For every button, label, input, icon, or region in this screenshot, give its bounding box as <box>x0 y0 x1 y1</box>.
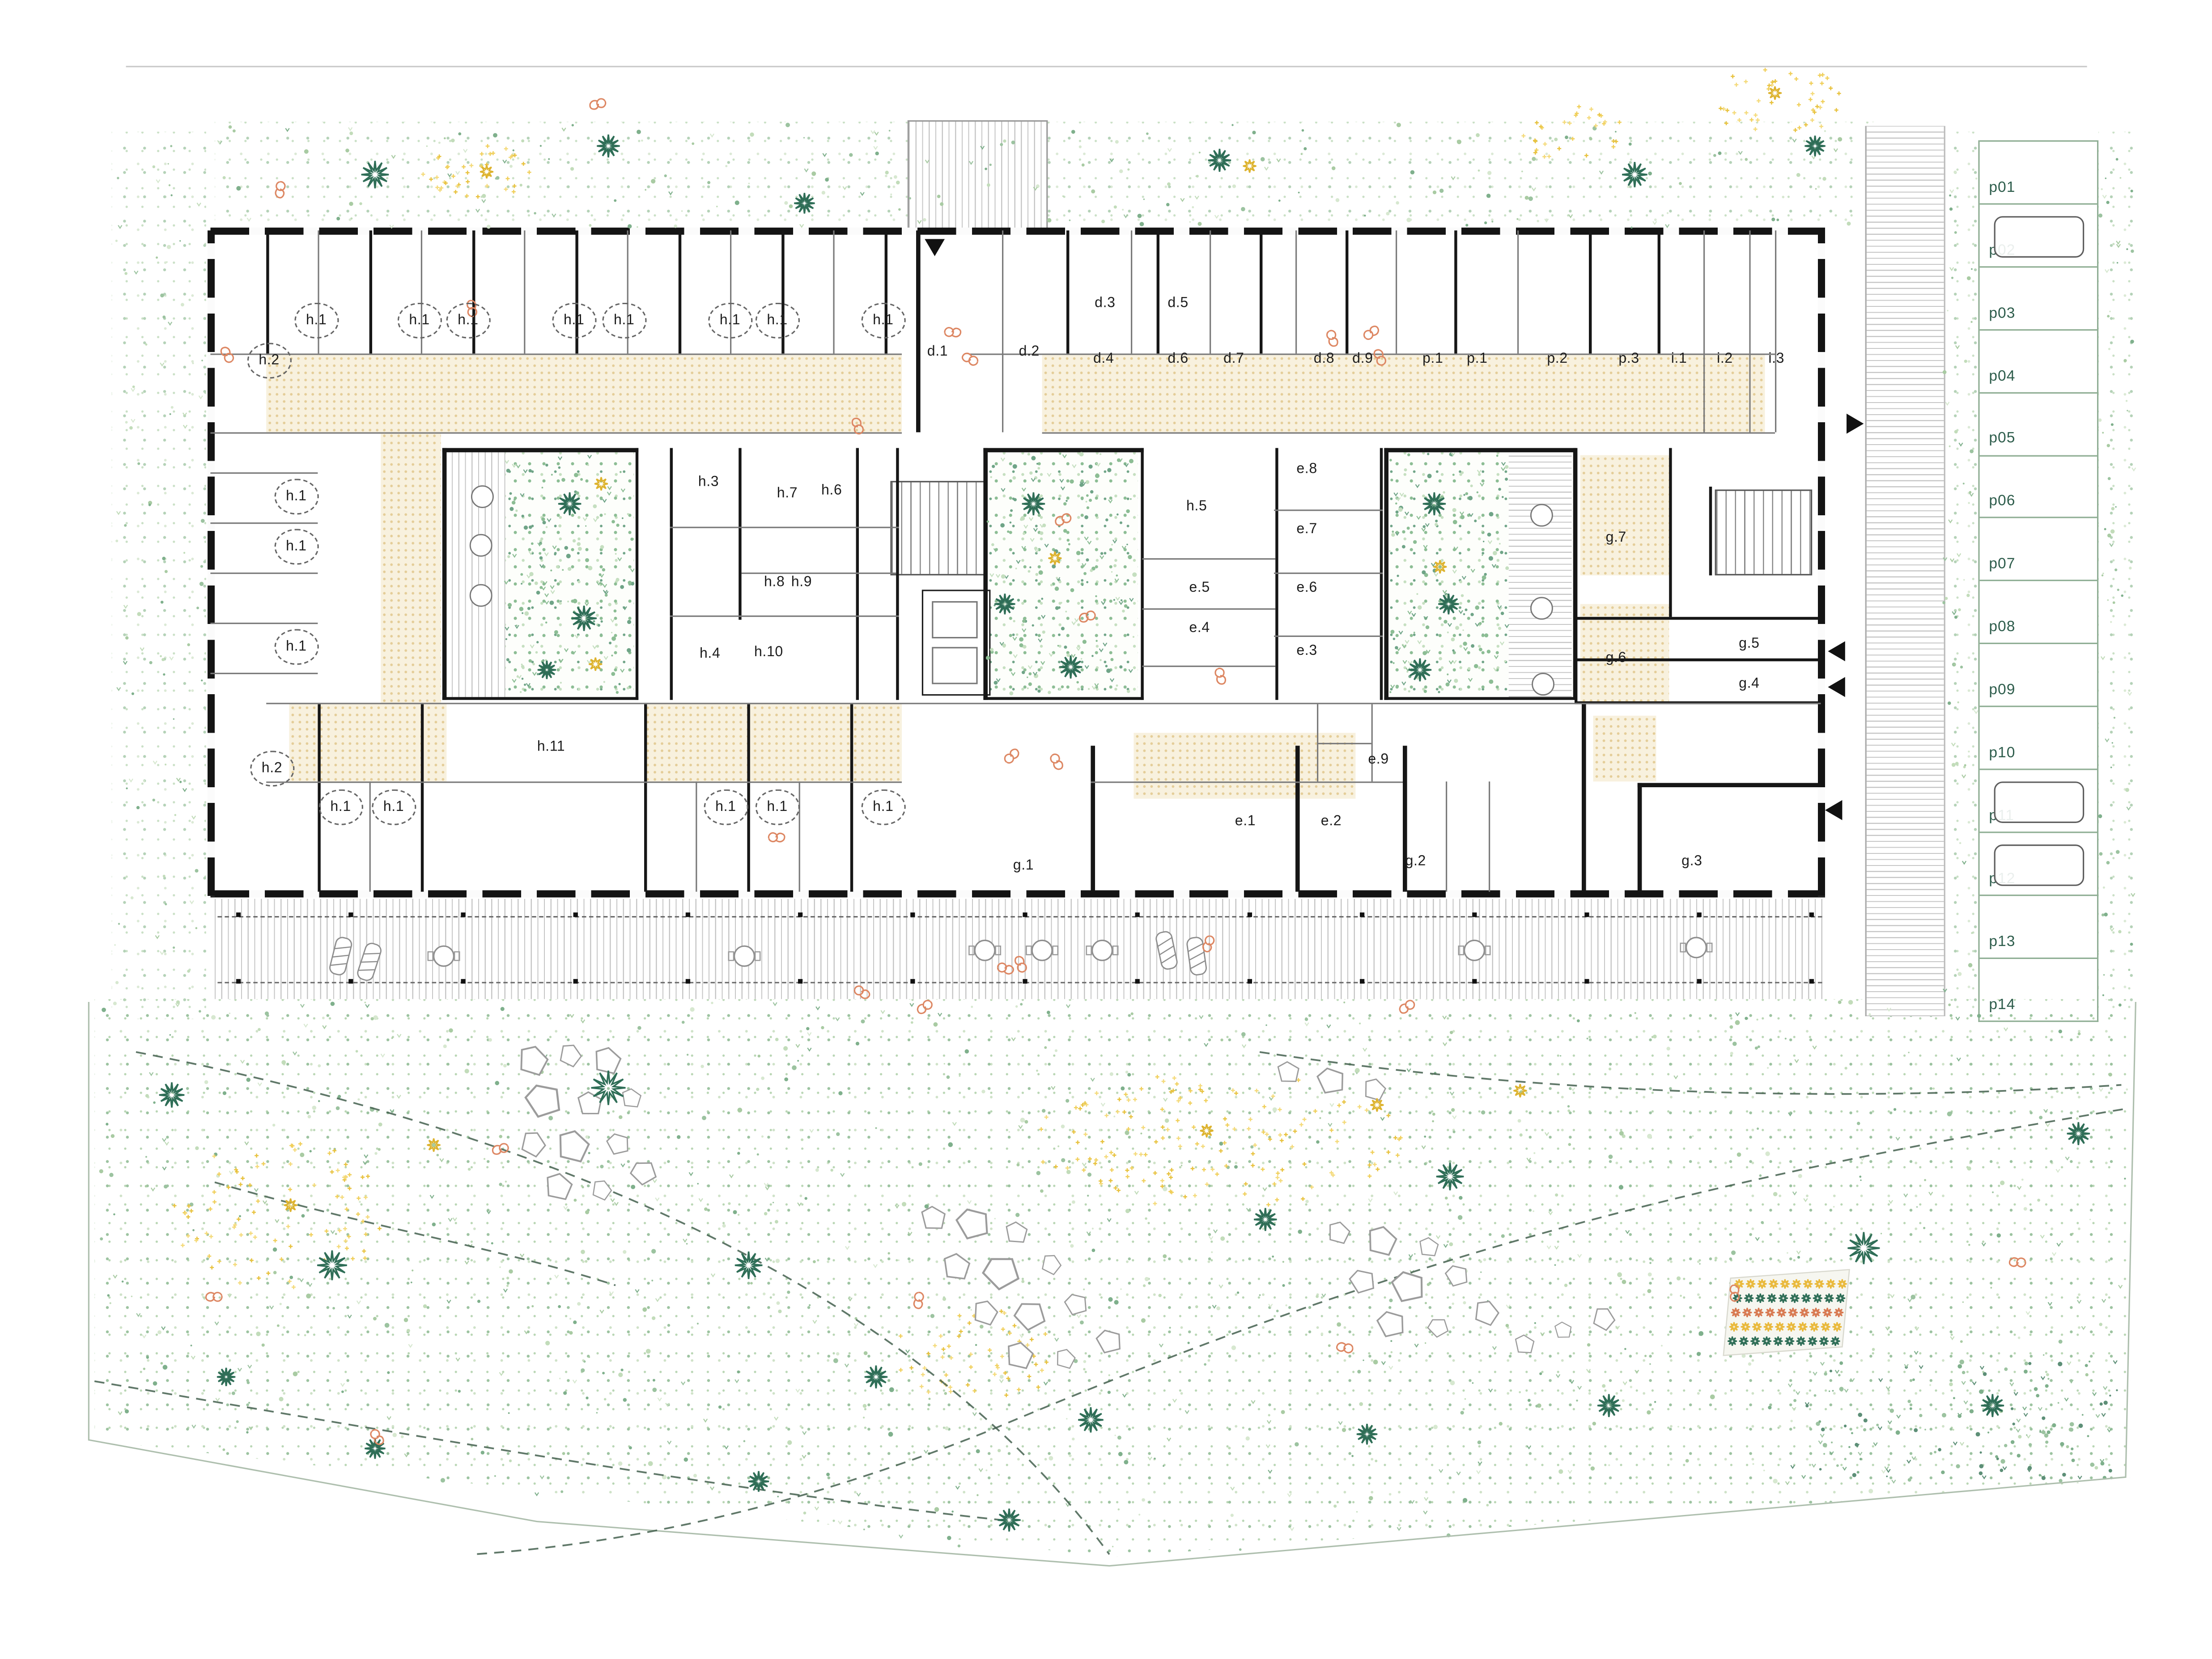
grass-dot <box>1042 631 1045 634</box>
grass-dot <box>889 1387 894 1392</box>
grass-tick <box>404 1454 408 1456</box>
flower-dot <box>327 1151 331 1155</box>
flower-dot <box>1124 1092 1128 1096</box>
grass-tick <box>1492 564 1496 567</box>
grass-dot <box>1537 220 1539 222</box>
grass-dot <box>1390 630 1394 634</box>
grass-dot <box>1007 530 1009 533</box>
grass-dot <box>971 1309 972 1311</box>
grass-tick <box>725 1446 728 1448</box>
grass-dot <box>1967 276 1971 280</box>
grass-dot <box>1055 586 1059 591</box>
grass-tick <box>453 1218 457 1220</box>
grass-dot <box>113 1001 117 1005</box>
grass-dot <box>115 539 118 542</box>
grass-tick <box>387 1417 391 1419</box>
grass-dot <box>509 165 513 168</box>
grass-dot <box>1647 1410 1651 1414</box>
grass-dot <box>1088 688 1090 690</box>
grass-dot <box>1413 540 1417 544</box>
grass-tick <box>505 460 509 463</box>
grass-dot <box>1034 547 1038 550</box>
stone-icon <box>1005 1340 1035 1369</box>
grass-dot <box>503 1064 507 1068</box>
flower-dot <box>1054 1165 1058 1169</box>
grass-tick <box>192 1425 195 1428</box>
flower-dot <box>1749 118 1753 122</box>
grass-dot <box>1122 610 1125 613</box>
room-label-d.7: d.7 <box>1223 352 1244 367</box>
grass-dot <box>585 558 589 562</box>
grass-tick <box>408 1344 412 1347</box>
grass-dot <box>2108 477 2111 480</box>
room-label-h.11: h.11 <box>537 739 565 755</box>
flower-dot <box>959 1329 963 1333</box>
grass-dot <box>813 1260 816 1263</box>
flower-dot <box>351 1256 355 1260</box>
grass-dot <box>1576 1400 1578 1402</box>
grass-dot <box>994 1218 996 1219</box>
grass-dot <box>896 181 900 185</box>
grass-dot <box>1591 1466 1595 1470</box>
grass-dot <box>1131 1012 1134 1015</box>
grass-tick <box>1024 525 1027 528</box>
grass-dot <box>992 465 995 468</box>
grass-tick <box>487 1210 490 1213</box>
grass-dot <box>1414 632 1415 633</box>
grass-tick <box>620 669 624 672</box>
grass-dot <box>1278 199 1281 202</box>
grass-dot <box>568 567 572 571</box>
grass-tick <box>170 657 173 659</box>
grass-dot <box>1942 1413 1946 1417</box>
plant-icon <box>1357 1424 1377 1444</box>
grass-dot <box>464 1069 469 1073</box>
grass-dot <box>702 1116 706 1120</box>
grass-tick <box>1532 188 1536 191</box>
grass-dot <box>162 315 166 318</box>
grass-dot <box>1128 555 1132 559</box>
grass-dot <box>1282 1284 1285 1287</box>
grass-dot <box>2108 1073 2112 1077</box>
grass-dot <box>1071 130 1075 134</box>
grass-dot <box>1486 194 1490 198</box>
grass-dot <box>1285 1304 1287 1306</box>
grass-dot <box>830 1169 833 1171</box>
grass-dot <box>1029 566 1031 568</box>
flower-dot <box>1829 86 1833 90</box>
grass-dot <box>1320 1332 1323 1335</box>
grass-dot <box>1475 606 1479 610</box>
grass-dot <box>1398 507 1403 512</box>
grass-dot <box>125 1409 129 1413</box>
flower-dot <box>1763 68 1767 72</box>
flower-dot <box>255 1154 259 1158</box>
grass-tick <box>1813 1046 1816 1048</box>
grass-dot <box>619 1115 623 1119</box>
grass-dot <box>179 781 182 783</box>
grass-dot <box>1484 573 1486 576</box>
grass-dot <box>1031 456 1036 460</box>
grass-tick <box>2114 1361 2117 1363</box>
grass-dot <box>1477 491 1478 493</box>
post-icon <box>348 979 353 984</box>
grass-dot <box>1195 1305 1198 1308</box>
grass-dot <box>1761 1221 1764 1224</box>
grass-dot <box>1453 520 1457 524</box>
flower-dot <box>939 1334 943 1338</box>
grass-dot <box>1095 474 1100 478</box>
grass-tick <box>1665 225 1669 227</box>
grass-dot <box>1609 1068 1611 1070</box>
grass-dot <box>1452 1303 1454 1305</box>
grass-dot <box>356 1050 358 1052</box>
grass-dot <box>1138 1514 1140 1515</box>
grass-dot <box>1120 1288 1121 1290</box>
grass-tick <box>547 518 551 521</box>
grass-tick <box>153 761 157 764</box>
plant-icon <box>1078 1407 1103 1432</box>
grass-dot <box>2012 1422 2015 1425</box>
grass-dot <box>1272 1256 1274 1258</box>
grass-dot <box>1000 1375 1004 1379</box>
grass-tick <box>1268 1470 1272 1472</box>
grass-tick <box>1427 650 1430 653</box>
table-icon <box>471 486 493 507</box>
grass-dot <box>1015 1005 1018 1007</box>
flower-dot <box>233 1263 237 1267</box>
grass-dot <box>1914 1428 1918 1432</box>
grass-dot <box>887 1252 890 1254</box>
grass-dot <box>1061 1158 1065 1162</box>
grass-dot <box>1589 137 1592 140</box>
grass-dot <box>1163 1254 1167 1258</box>
grass-tick <box>1886 1327 1889 1329</box>
grass-tick <box>1451 177 1455 179</box>
grass-dot <box>341 1391 344 1393</box>
grass-dot <box>641 140 643 142</box>
grass-dot <box>1468 496 1473 501</box>
grass-tick <box>1819 1441 1822 1443</box>
room-label-p.2: p.2 <box>1547 352 1567 367</box>
room-label-h.1: h.1 <box>294 303 338 339</box>
grass-dot <box>2109 1395 2111 1396</box>
grass-tick <box>1405 512 1409 514</box>
grass-dot <box>875 1127 877 1129</box>
flower-dot <box>1040 1368 1044 1372</box>
grass-tick <box>1119 601 1123 604</box>
grass-tick <box>1103 643 1107 645</box>
grass-tick <box>1129 669 1133 672</box>
grass-tick <box>1434 573 1438 576</box>
grass-tick <box>845 1364 849 1366</box>
chair-icon <box>755 952 760 960</box>
grass-dot <box>345 149 349 153</box>
grass-tick <box>134 271 138 274</box>
grass-tick <box>1030 538 1034 541</box>
grass-dot <box>1010 522 1012 524</box>
grass-dot <box>1461 1411 1464 1414</box>
grass-dot <box>1567 1105 1570 1107</box>
grass-dot <box>933 1022 938 1027</box>
grass-tick <box>1399 631 1402 634</box>
flower-dot <box>212 1190 216 1194</box>
grass-dot <box>373 1317 377 1320</box>
flower-dot <box>462 165 466 169</box>
grass-dot <box>1163 1465 1164 1467</box>
flower-dot <box>1577 105 1581 109</box>
grass-dot <box>1108 1129 1110 1132</box>
stone-icon <box>1006 1222 1027 1242</box>
flower-dot <box>1809 98 1813 102</box>
grass-tick <box>2065 1157 2069 1159</box>
grass-dot <box>1635 1476 1638 1478</box>
grass-dot <box>223 176 226 179</box>
flower-dot <box>1358 1105 1362 1109</box>
chair-icon <box>1113 946 1118 955</box>
grass-dot <box>1952 763 1956 767</box>
plant-icon <box>538 661 556 679</box>
grass-dot <box>1793 1399 1796 1402</box>
grass-dot <box>1124 604 1128 608</box>
grass-dot <box>1815 188 1817 190</box>
grass-dot <box>491 1242 493 1244</box>
grass-dot <box>722 1224 726 1228</box>
grass-dot <box>1035 573 1038 576</box>
flower-dot <box>1261 1130 1265 1134</box>
grass-dot <box>2109 1469 2112 1472</box>
grass-dot <box>775 1220 778 1224</box>
stone-icon <box>621 1088 641 1107</box>
grass-tick <box>1736 1013 1739 1015</box>
flower-dot <box>1535 121 1539 125</box>
flower-dot <box>1804 123 1808 127</box>
grass-dot <box>1857 1122 1860 1125</box>
grass-dot <box>1393 638 1395 640</box>
grass-dot <box>1539 1372 1542 1375</box>
plant-icon <box>1438 594 1459 614</box>
grass-dot <box>1964 764 1966 766</box>
post-icon <box>236 979 241 984</box>
grass-tick <box>249 1426 253 1429</box>
flower-dot <box>1386 1113 1390 1117</box>
grass-dot <box>1783 1136 1786 1138</box>
post-icon <box>1023 979 1027 984</box>
grass-tick <box>131 388 135 391</box>
grass-tick <box>804 169 808 171</box>
grass-dot <box>1424 690 1427 693</box>
grass-dot <box>1022 619 1026 623</box>
grass-tick <box>1950 1337 1954 1339</box>
flower-dot <box>1825 76 1829 80</box>
grass-dot <box>1036 1069 1038 1072</box>
grass-dot <box>1143 1284 1146 1287</box>
flower-dot <box>1176 1136 1180 1140</box>
grass-dot <box>1680 1295 1682 1297</box>
grass-dot <box>2066 1445 2069 1448</box>
grass-dot <box>586 1135 589 1138</box>
grass-dot <box>1948 1004 1951 1006</box>
flower-dot <box>1189 1089 1193 1093</box>
grass-dot <box>1957 701 1959 703</box>
plant-icon <box>589 658 602 670</box>
grass-dot <box>1080 1320 1084 1324</box>
grass-dot <box>1923 1227 1925 1229</box>
grass-dot <box>593 505 597 509</box>
grass-tick <box>667 1441 671 1443</box>
plant-icon <box>159 1082 184 1107</box>
grass-tick <box>2044 1109 2047 1112</box>
grass-dot <box>1609 1154 1613 1159</box>
stone-icon <box>1515 1335 1534 1353</box>
flower-dot <box>966 1383 970 1387</box>
grass-tick <box>503 160 506 162</box>
grass-dot <box>166 261 168 263</box>
grass-tick <box>440 1158 443 1161</box>
grass-dot <box>1019 643 1023 647</box>
grass-dot <box>2044 1433 2049 1438</box>
table-icon <box>1465 940 1485 960</box>
grass-dot <box>2113 601 2115 604</box>
grass-dot <box>1463 1498 1467 1502</box>
grass-tick <box>2056 1169 2059 1172</box>
grass-dot <box>308 1115 311 1119</box>
grass-dot <box>1036 1171 1041 1175</box>
grass-tick <box>1167 1438 1171 1441</box>
grass-dot <box>572 124 574 126</box>
grass-tick <box>160 363 164 365</box>
grass-dot <box>1968 751 1970 752</box>
grass-dot <box>1908 1052 1909 1053</box>
grass-dot <box>1165 1119 1169 1123</box>
flower-dot <box>1201 1144 1205 1148</box>
grass-tick <box>248 1365 251 1368</box>
grass-tick <box>581 1020 585 1023</box>
grass-dot <box>1560 1055 1561 1056</box>
grass-tick <box>390 225 393 228</box>
flower-dot <box>504 147 508 151</box>
grass-dot <box>1957 1414 1962 1418</box>
grass-dot <box>1027 453 1030 455</box>
flower-dot <box>1161 1136 1165 1140</box>
grass-tick <box>168 322 172 325</box>
grass-dot <box>2107 315 2110 318</box>
grass-dot <box>1622 1280 1626 1284</box>
table-icon <box>1092 940 1112 960</box>
grass-dot <box>1970 321 1972 323</box>
grass-tick <box>997 679 1000 681</box>
grass-dot <box>681 210 683 212</box>
grass-tick <box>996 574 1000 577</box>
grass-dot <box>201 519 205 523</box>
grass-tick <box>1505 624 1508 627</box>
grass-dot <box>1533 1152 1535 1154</box>
grass-dot <box>811 171 816 176</box>
grass-dot <box>863 1404 867 1408</box>
grass-dot <box>890 194 892 195</box>
grass-dot <box>516 624 517 626</box>
grass-tick <box>1448 623 1452 626</box>
flower-dot <box>1280 1168 1284 1172</box>
grass-tick <box>456 171 459 174</box>
flower-dot <box>1589 107 1593 111</box>
flower-dot <box>504 187 508 191</box>
grass-dot <box>115 240 118 242</box>
plant-icon <box>794 193 815 213</box>
flower-dot <box>364 1232 368 1236</box>
grass-tick <box>1462 576 1466 579</box>
grass-dot <box>1003 140 1006 143</box>
grass-dot <box>438 142 441 144</box>
grass-tick <box>1267 1421 1271 1423</box>
grass-dot <box>923 218 926 221</box>
grass-dot <box>604 1398 607 1400</box>
person-icon <box>588 96 607 113</box>
grass-tick <box>1408 611 1411 614</box>
grass-dot <box>1482 554 1483 556</box>
grass-dot <box>1424 1163 1427 1166</box>
grass-tick <box>1022 629 1026 632</box>
grass-tick <box>1950 559 1954 561</box>
grass-dot <box>1715 1257 1718 1260</box>
grass-dot <box>620 585 624 589</box>
grass-dot <box>1970 1409 1974 1413</box>
grass-dot <box>126 787 127 789</box>
grass-dot <box>1000 143 1003 146</box>
grass-dot <box>2047 1430 2051 1434</box>
grass-tick <box>836 1018 839 1020</box>
grass-tick <box>1327 1025 1330 1027</box>
grass-dot <box>196 607 199 609</box>
grass-dot <box>1478 518 1480 520</box>
grass-dot <box>776 1301 780 1305</box>
grass-dot <box>1471 644 1474 648</box>
grass-dot <box>484 1158 485 1160</box>
grass-dot <box>2102 574 2103 576</box>
grass-tick <box>191 1356 195 1359</box>
grass-tick <box>183 789 187 791</box>
grass-dot <box>187 643 190 646</box>
grass-dot <box>1863 1428 1866 1431</box>
grass-dot <box>1234 1165 1238 1169</box>
person-icon <box>913 1292 926 1309</box>
grass-dot <box>1962 1371 1966 1375</box>
grass-dot <box>1894 1108 1896 1111</box>
grass-dot <box>2011 1407 2013 1410</box>
grass-dot <box>1016 633 1019 636</box>
grass-dot <box>1819 1468 1822 1471</box>
grass-tick <box>1123 1394 1126 1396</box>
grass-dot <box>664 174 667 177</box>
flower-dot <box>1223 1117 1227 1121</box>
flower-dot <box>1003 1371 1007 1375</box>
flower-dot <box>1126 1098 1130 1102</box>
grass-dot <box>980 1418 982 1421</box>
grass-dot <box>1061 627 1065 630</box>
grass-dot <box>512 501 516 505</box>
grass-dot <box>1615 131 1617 133</box>
grass-dot <box>2095 1466 2098 1470</box>
grass-dot <box>1565 136 1568 139</box>
grass-tick <box>1500 642 1504 645</box>
grass-dot <box>815 1168 819 1172</box>
grass-dot <box>1697 1352 1701 1356</box>
entrance-arrow-g3-icon <box>1825 800 1842 820</box>
room-label-h.1: h.1 <box>756 789 799 825</box>
grass-tick <box>165 1142 169 1145</box>
grass-dot <box>364 1001 366 1003</box>
grass-dot <box>1446 683 1450 687</box>
